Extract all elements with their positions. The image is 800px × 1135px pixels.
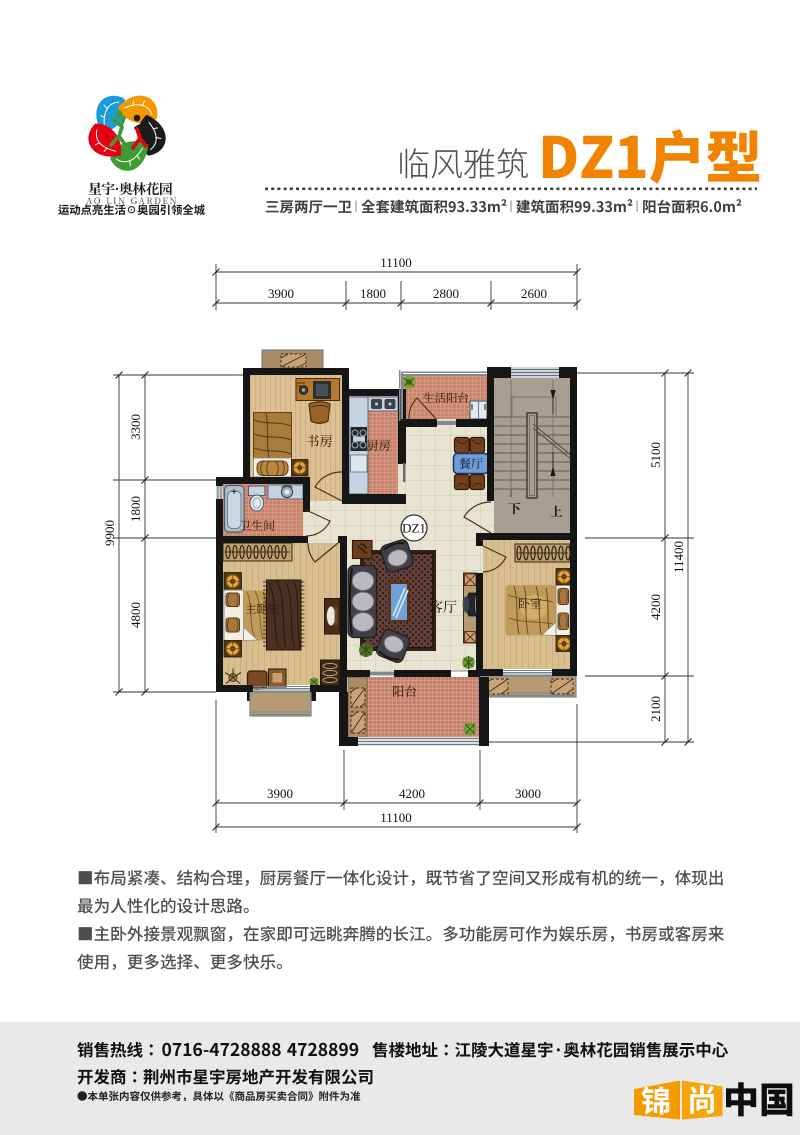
svg-text:4200: 4200 — [648, 594, 663, 620]
svg-text:2100: 2100 — [648, 696, 663, 722]
svg-text:DZ1: DZ1 — [402, 521, 426, 536]
svg-text:4800: 4800 — [128, 602, 143, 628]
svg-text:2600: 2600 — [521, 286, 547, 301]
svg-text:11400: 11400 — [671, 541, 686, 573]
svg-text:11100: 11100 — [380, 255, 412, 270]
svg-text:1800: 1800 — [128, 496, 143, 522]
svg-text:9900: 9900 — [102, 520, 117, 546]
svg-text:3900: 3900 — [268, 286, 294, 301]
svg-text:1800: 1800 — [360, 286, 386, 301]
svg-text:11100: 11100 — [380, 810, 412, 825]
svg-text:2800: 2800 — [433, 286, 459, 301]
svg-text:5100: 5100 — [648, 442, 663, 468]
svg-text:3000: 3000 — [515, 786, 541, 801]
svg-text:3900: 3900 — [267, 786, 293, 801]
svg-text:3300: 3300 — [128, 414, 143, 440]
svg-text:4200: 4200 — [399, 786, 425, 801]
